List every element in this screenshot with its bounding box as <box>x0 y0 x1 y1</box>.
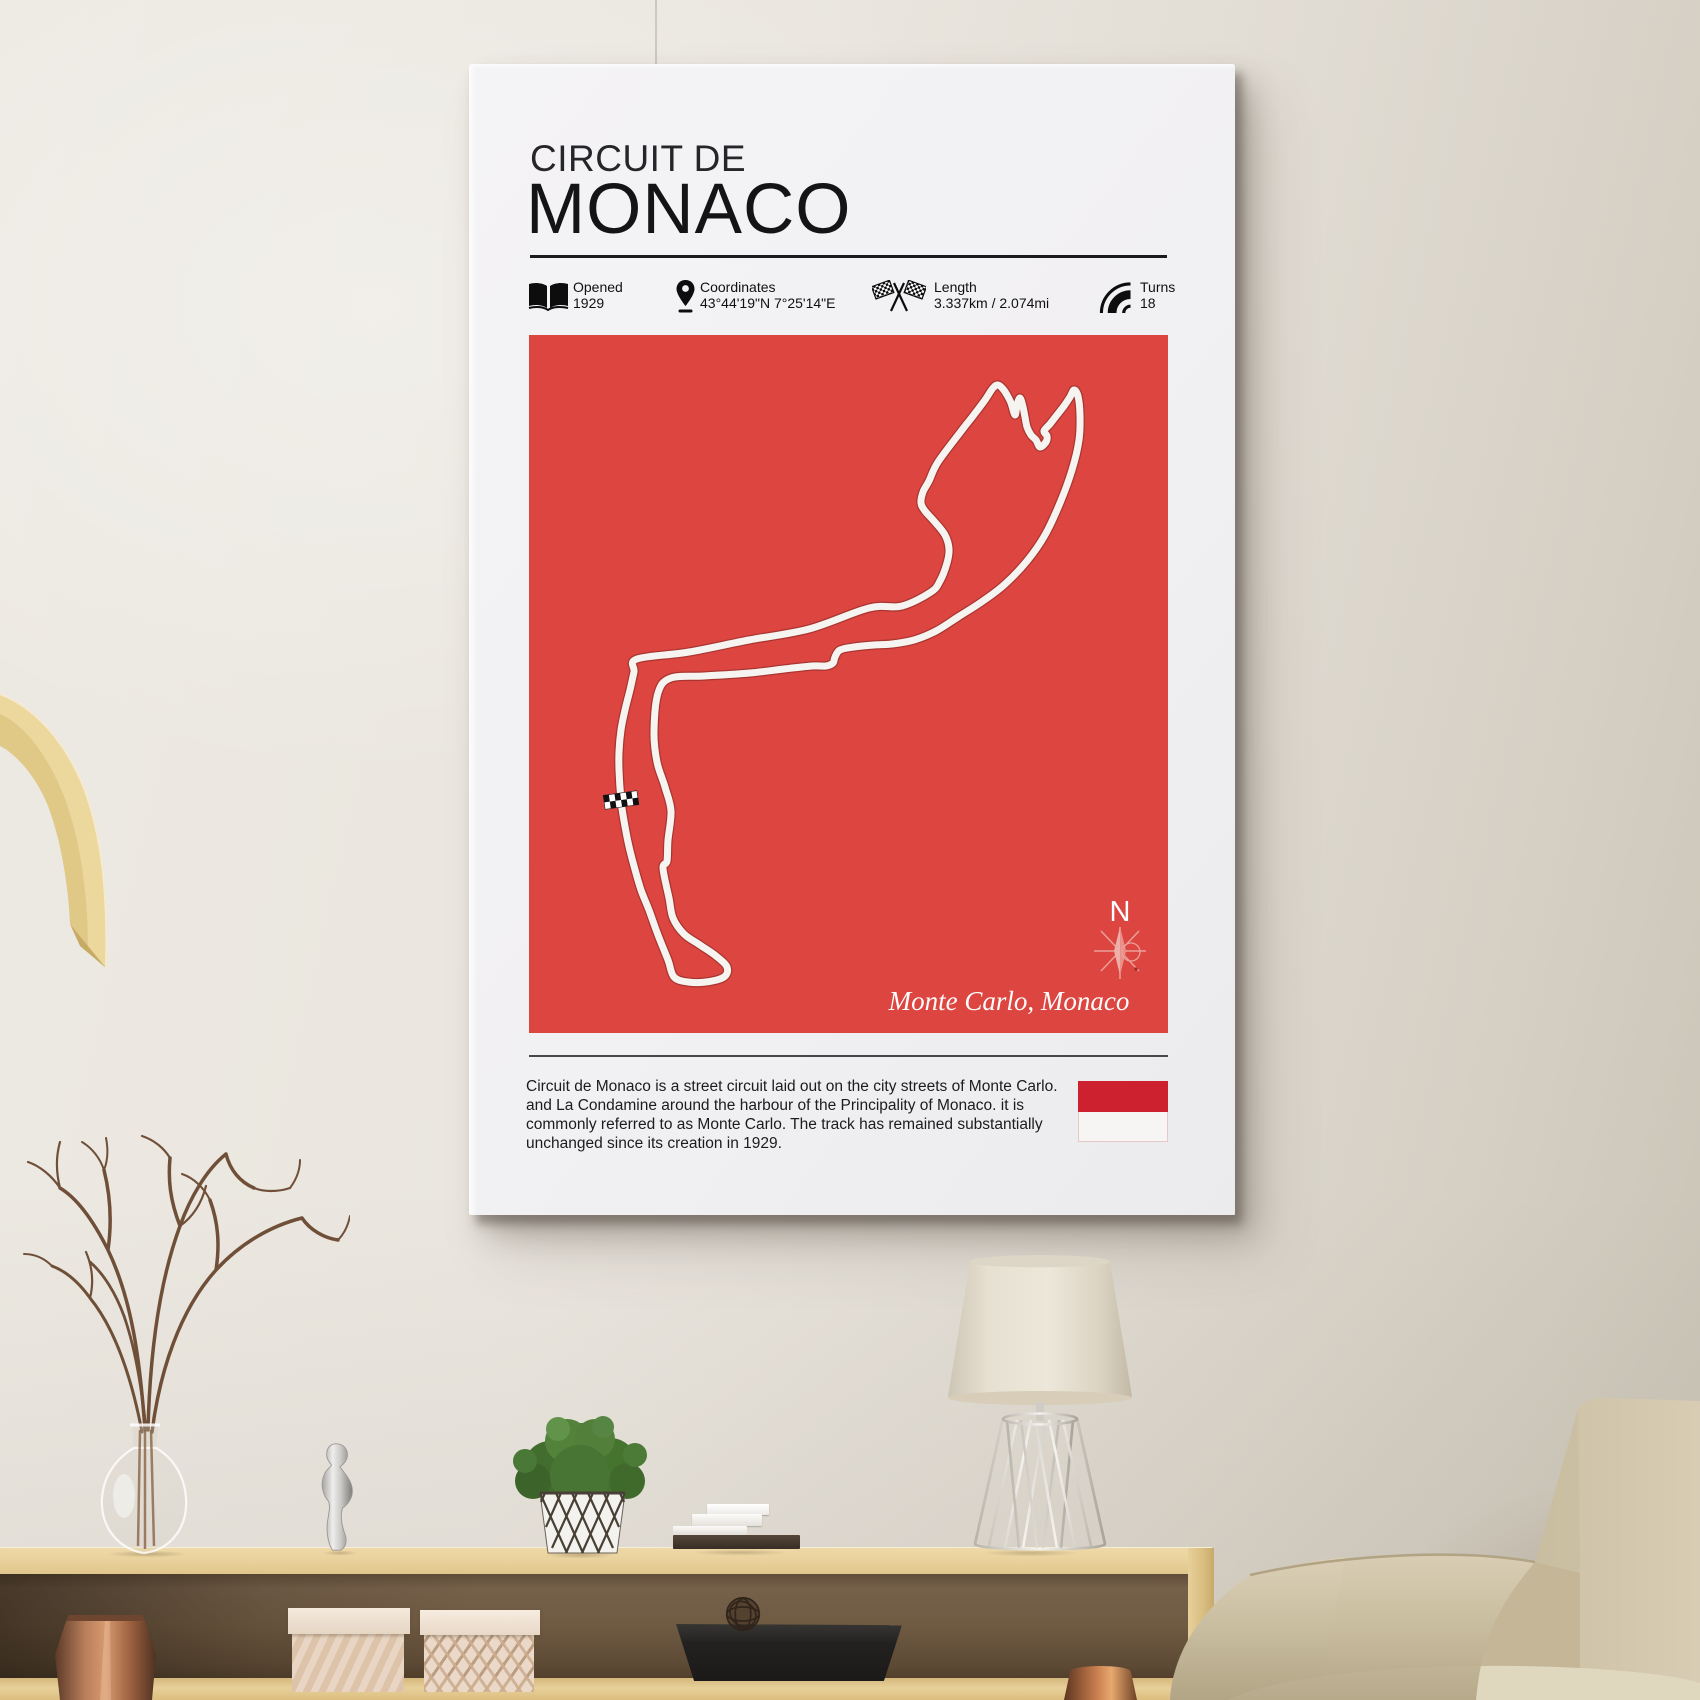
svg-text:N: N <box>1110 896 1131 928</box>
svg-text:Monte Carlo, Monaco: Monte Carlo, Monaco <box>888 986 1130 1016</box>
